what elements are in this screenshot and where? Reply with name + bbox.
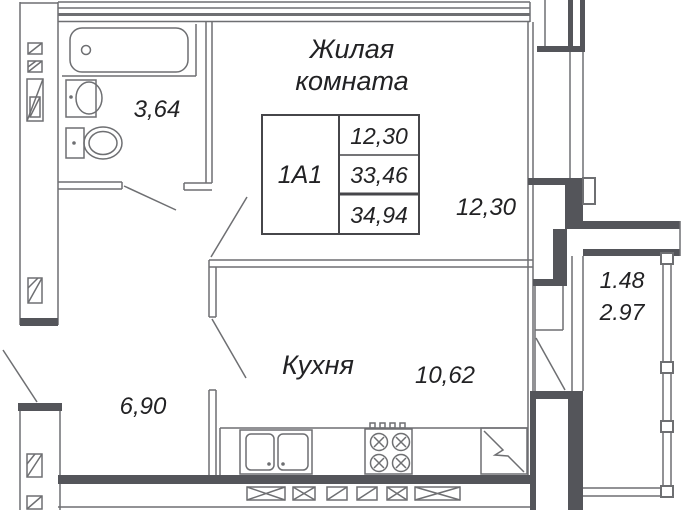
floor-plan-drawing: 3,64 Жилая комната 12,30 1А1 12,30 33,46… [0, 0, 686, 510]
pillar-foot [533, 279, 567, 286]
pillar [565, 178, 583, 223]
window-sills [247, 487, 460, 500]
bathroom: 3,64 [62, 24, 196, 159]
kitchen-sink-icon [240, 430, 312, 474]
total-area-with-balcony-value: 34,94 [350, 202, 408, 228]
vent-icon [28, 43, 42, 54]
kitchen-door-swing [212, 319, 246, 378]
balcony-area-label: 2.97 [599, 299, 646, 325]
apartment-info-table: 1А1 12,30 33,46 34,94 [262, 115, 419, 234]
entry-door-line [3, 350, 37, 402]
glazing-mullion [661, 421, 673, 432]
living-room-title: комната [295, 66, 408, 96]
stove-icon [365, 423, 412, 474]
total-area-value: 33,46 [350, 162, 408, 188]
hall-kitchen-wall-lower [209, 390, 216, 475]
living-room-area-label: 12,30 [456, 194, 517, 221]
glazing-mullion [661, 253, 673, 264]
balcony: 1.48 2.97 [572, 253, 673, 497]
balcony-door-jamb [535, 286, 563, 391]
balcony-arm-upper [565, 221, 680, 229]
balcony-side-wall [572, 256, 583, 391]
refrigerator-icon [481, 428, 527, 474]
living-kitchen-wall [209, 260, 533, 267]
kitchen-title: Кухня [282, 350, 354, 380]
vent-icon [28, 61, 42, 72]
bathroom-wall-foot [184, 183, 212, 190]
balcony-door-swing [536, 338, 565, 390]
bathtub-icon [70, 28, 188, 72]
kitchen: Кухня 10,62 [220, 350, 528, 475]
bottom-wall [58, 475, 533, 484]
living-room: Жилая комната 12,30 1А1 12,30 33,46 34,9… [262, 34, 517, 234]
bathroom-door-swing [124, 186, 176, 210]
left-wall-end [20, 318, 58, 326]
adjacent-wall [580, 0, 585, 52]
right-wall-spur [528, 178, 571, 185]
window-sill-hatch [415, 487, 460, 500]
pillar [553, 229, 567, 286]
hallway: 6,90 [120, 393, 167, 420]
ventilation-shafts [27, 43, 43, 509]
window-sill-hatch [247, 487, 285, 500]
kitchen-area-label: 10,62 [415, 362, 475, 389]
living-room-title: Жилая [308, 34, 394, 64]
pillar-box [583, 178, 595, 204]
bathroom-area-label: 3,64 [134, 96, 181, 123]
washbasin-icon [66, 80, 102, 117]
window-sill-hatch [387, 487, 407, 500]
bathroom-bottom-wall [58, 182, 122, 189]
living-area-value: 12,30 [350, 123, 408, 149]
vent-icon [27, 454, 42, 477]
adjacent-wall [537, 46, 585, 52]
window-sill-hatch [293, 487, 315, 500]
adjacent-wall [568, 0, 573, 52]
floor-plan: 3,64 Жилая комната 12,30 1А1 12,30 33,46… [0, 0, 686, 510]
hall-kitchen-wall-upper [209, 267, 216, 317]
glazing-mullion [661, 486, 673, 497]
left-lower-wall-top [18, 403, 62, 411]
kitchen-right-wall [568, 399, 583, 510]
toilet-icon [66, 127, 122, 159]
hallway-area-label: 6,90 [120, 393, 167, 420]
glazing-mullion [661, 362, 673, 373]
kitchen-right-wall [530, 399, 536, 510]
balcony-area-coefficient-label: 1.48 [600, 267, 645, 293]
window-sill-hatch [357, 487, 377, 500]
balcony-rail [583, 488, 671, 496]
living-door-swing [211, 197, 247, 257]
vent-icon [28, 278, 42, 303]
balcony-glazing [663, 256, 671, 496]
apartment-id: 1А1 [278, 161, 322, 189]
kitchen-right-wall [530, 391, 583, 399]
window-sill-hatch [327, 487, 347, 500]
vent-icon [27, 496, 42, 509]
shaft-icon [27, 79, 43, 121]
